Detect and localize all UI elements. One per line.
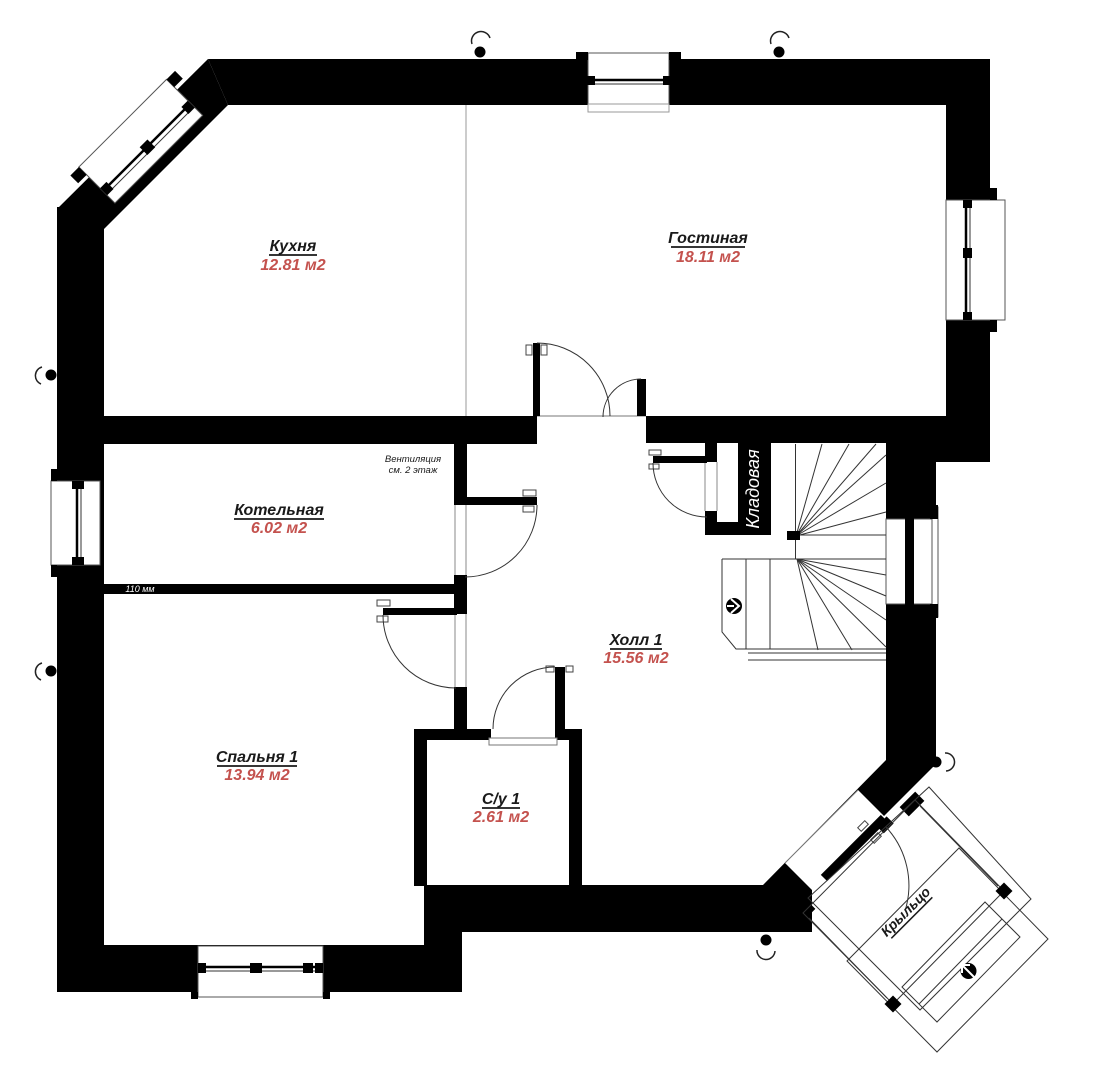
svg-text:Холл 1: Холл 1 (608, 632, 662, 649)
svg-text:13.94 м2: 13.94 м2 (224, 767, 289, 784)
svg-text:12.81 м2: 12.81 м2 (260, 257, 325, 274)
svg-text:6.02 м2: 6.02 м2 (251, 520, 307, 537)
svg-text:Кухня: Кухня (270, 238, 317, 255)
svg-text:С/у 1: С/у 1 (482, 791, 520, 808)
svg-text:Спальня 1: Спальня 1 (216, 749, 298, 766)
svg-text:18.11 м2: 18.11 м2 (676, 249, 740, 266)
svg-text:Кладовая: Кладовая (743, 449, 763, 529)
svg-text:15.56 м2: 15.56 м2 (603, 650, 668, 667)
svg-text:см. 2 этаж: см. 2 этаж (389, 465, 438, 476)
svg-text:Гостиная: Гостиная (668, 230, 748, 247)
svg-text:2.61 м2: 2.61 м2 (472, 809, 529, 826)
svg-text:110 мм: 110 мм (125, 584, 154, 594)
svg-text:Котельная: Котельная (234, 502, 324, 519)
svg-text:Вентиляция: Вентиляция (385, 454, 441, 465)
